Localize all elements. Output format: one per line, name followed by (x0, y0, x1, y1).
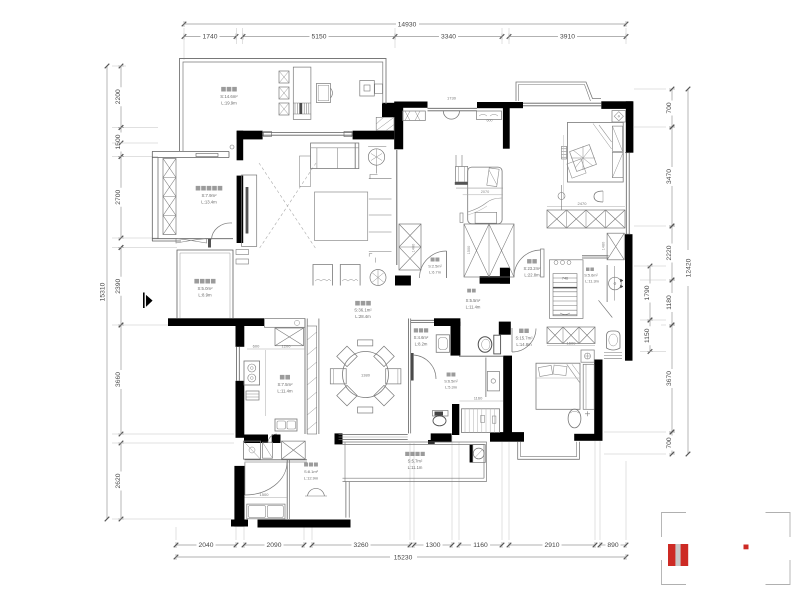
svg-text:L:8.2m: L:8.2m (415, 342, 428, 347)
svg-text:1500: 1500 (115, 134, 122, 149)
svg-text:L:6.7m: L:6.7m (429, 270, 441, 275)
svg-text:L:11.3m: L:11.3m (585, 279, 599, 284)
svg-text:S:23.2m²: S:23.2m² (524, 266, 542, 271)
svg-text:15310: 15310 (100, 282, 107, 301)
svg-text:2470: 2470 (578, 201, 588, 206)
svg-text:3670: 3670 (666, 371, 673, 386)
svg-text:1500: 1500 (260, 492, 270, 497)
svg-text:1480: 1480 (602, 242, 606, 250)
svg-text:L:13.4m: L:13.4m (201, 200, 217, 205)
svg-text:L:11.4m: L:11.4m (466, 305, 481, 310)
svg-text:1740: 1740 (203, 34, 218, 41)
svg-text:1300: 1300 (426, 542, 441, 549)
svg-text:L:22.8m: L:22.8m (524, 273, 540, 278)
svg-text:1150: 1150 (644, 328, 651, 343)
svg-text:S:5.5m²: S:5.5m² (466, 298, 481, 303)
svg-text:1790: 1790 (644, 285, 651, 300)
svg-text:S:15.7m²: S:15.7m² (516, 336, 534, 341)
svg-text:1500: 1500 (467, 246, 471, 254)
svg-text:S:5.7m²: S:5.7m² (408, 459, 423, 464)
svg-text:2700: 2700 (115, 190, 122, 205)
svg-text:1160: 1160 (473, 542, 488, 549)
svg-text:S:6.5m²: S:6.5m² (444, 379, 458, 384)
svg-text:1400: 1400 (412, 244, 416, 252)
svg-text:14930: 14930 (398, 21, 417, 28)
svg-text:1600: 1600 (567, 341, 577, 346)
svg-text:2910: 2910 (545, 542, 560, 549)
svg-text:3470: 3470 (666, 169, 673, 184)
svg-text:2620: 2620 (115, 473, 122, 488)
svg-text:1180: 1180 (666, 295, 673, 310)
svg-text:L:11.1m: L:11.1m (408, 465, 423, 470)
svg-text:S:5.0m²: S:5.0m² (197, 286, 213, 291)
svg-text:S:7.5m²: S:7.5m² (277, 382, 293, 387)
svg-text:700: 700 (666, 102, 673, 113)
svg-text:2040: 2040 (199, 542, 214, 549)
svg-text:2220: 2220 (666, 245, 673, 260)
svg-text:S:4.6m²: S:4.6m² (414, 335, 429, 340)
svg-text:12420: 12420 (686, 258, 693, 277)
svg-text:S:5.6m²: S:5.6m² (584, 273, 598, 278)
svg-text:L:11.4m: L:11.4m (277, 389, 293, 394)
svg-text:1200: 1200 (282, 344, 292, 349)
svg-text:3910: 3910 (560, 34, 575, 41)
svg-text:S:36.1m²: S:36.1m² (354, 308, 372, 313)
svg-text:700: 700 (666, 437, 673, 448)
svg-text:3260: 3260 (354, 542, 369, 549)
svg-text:600: 600 (253, 344, 260, 349)
svg-text:S:2.5m²: S:2.5m² (428, 264, 442, 269)
svg-text:746: 746 (562, 277, 568, 281)
svg-text:S:8.1m²: S:8.1m² (304, 469, 319, 474)
svg-text:3660: 3660 (115, 372, 122, 387)
svg-text:1380: 1380 (361, 373, 371, 378)
svg-text:S:7.9m²: S:7.9m² (201, 193, 217, 198)
svg-text:L:12.9m: L:12.9m (304, 476, 319, 481)
svg-text:S:14.6m²: S:14.6m² (220, 94, 238, 99)
svg-text:1730: 1730 (447, 96, 457, 101)
svg-text:3340: 3340 (441, 34, 456, 41)
svg-text:890: 890 (607, 542, 618, 549)
svg-text:600: 600 (487, 119, 493, 123)
svg-text:2090: 2090 (267, 542, 282, 549)
svg-text:L:5.3m: L:5.3m (445, 385, 457, 390)
svg-text:L:8.9m: L:8.9m (198, 293, 212, 298)
svg-text:15230: 15230 (394, 554, 413, 561)
svg-text:2200: 2200 (115, 89, 122, 104)
svg-text:L:28.4m: L:28.4m (355, 314, 371, 319)
svg-text:1160: 1160 (474, 396, 483, 401)
svg-text:L:19.9m: L:19.9m (221, 101, 237, 106)
svg-text:2390: 2390 (115, 279, 122, 294)
svg-text:2070: 2070 (481, 190, 489, 194)
svg-text:5150: 5150 (312, 34, 327, 41)
